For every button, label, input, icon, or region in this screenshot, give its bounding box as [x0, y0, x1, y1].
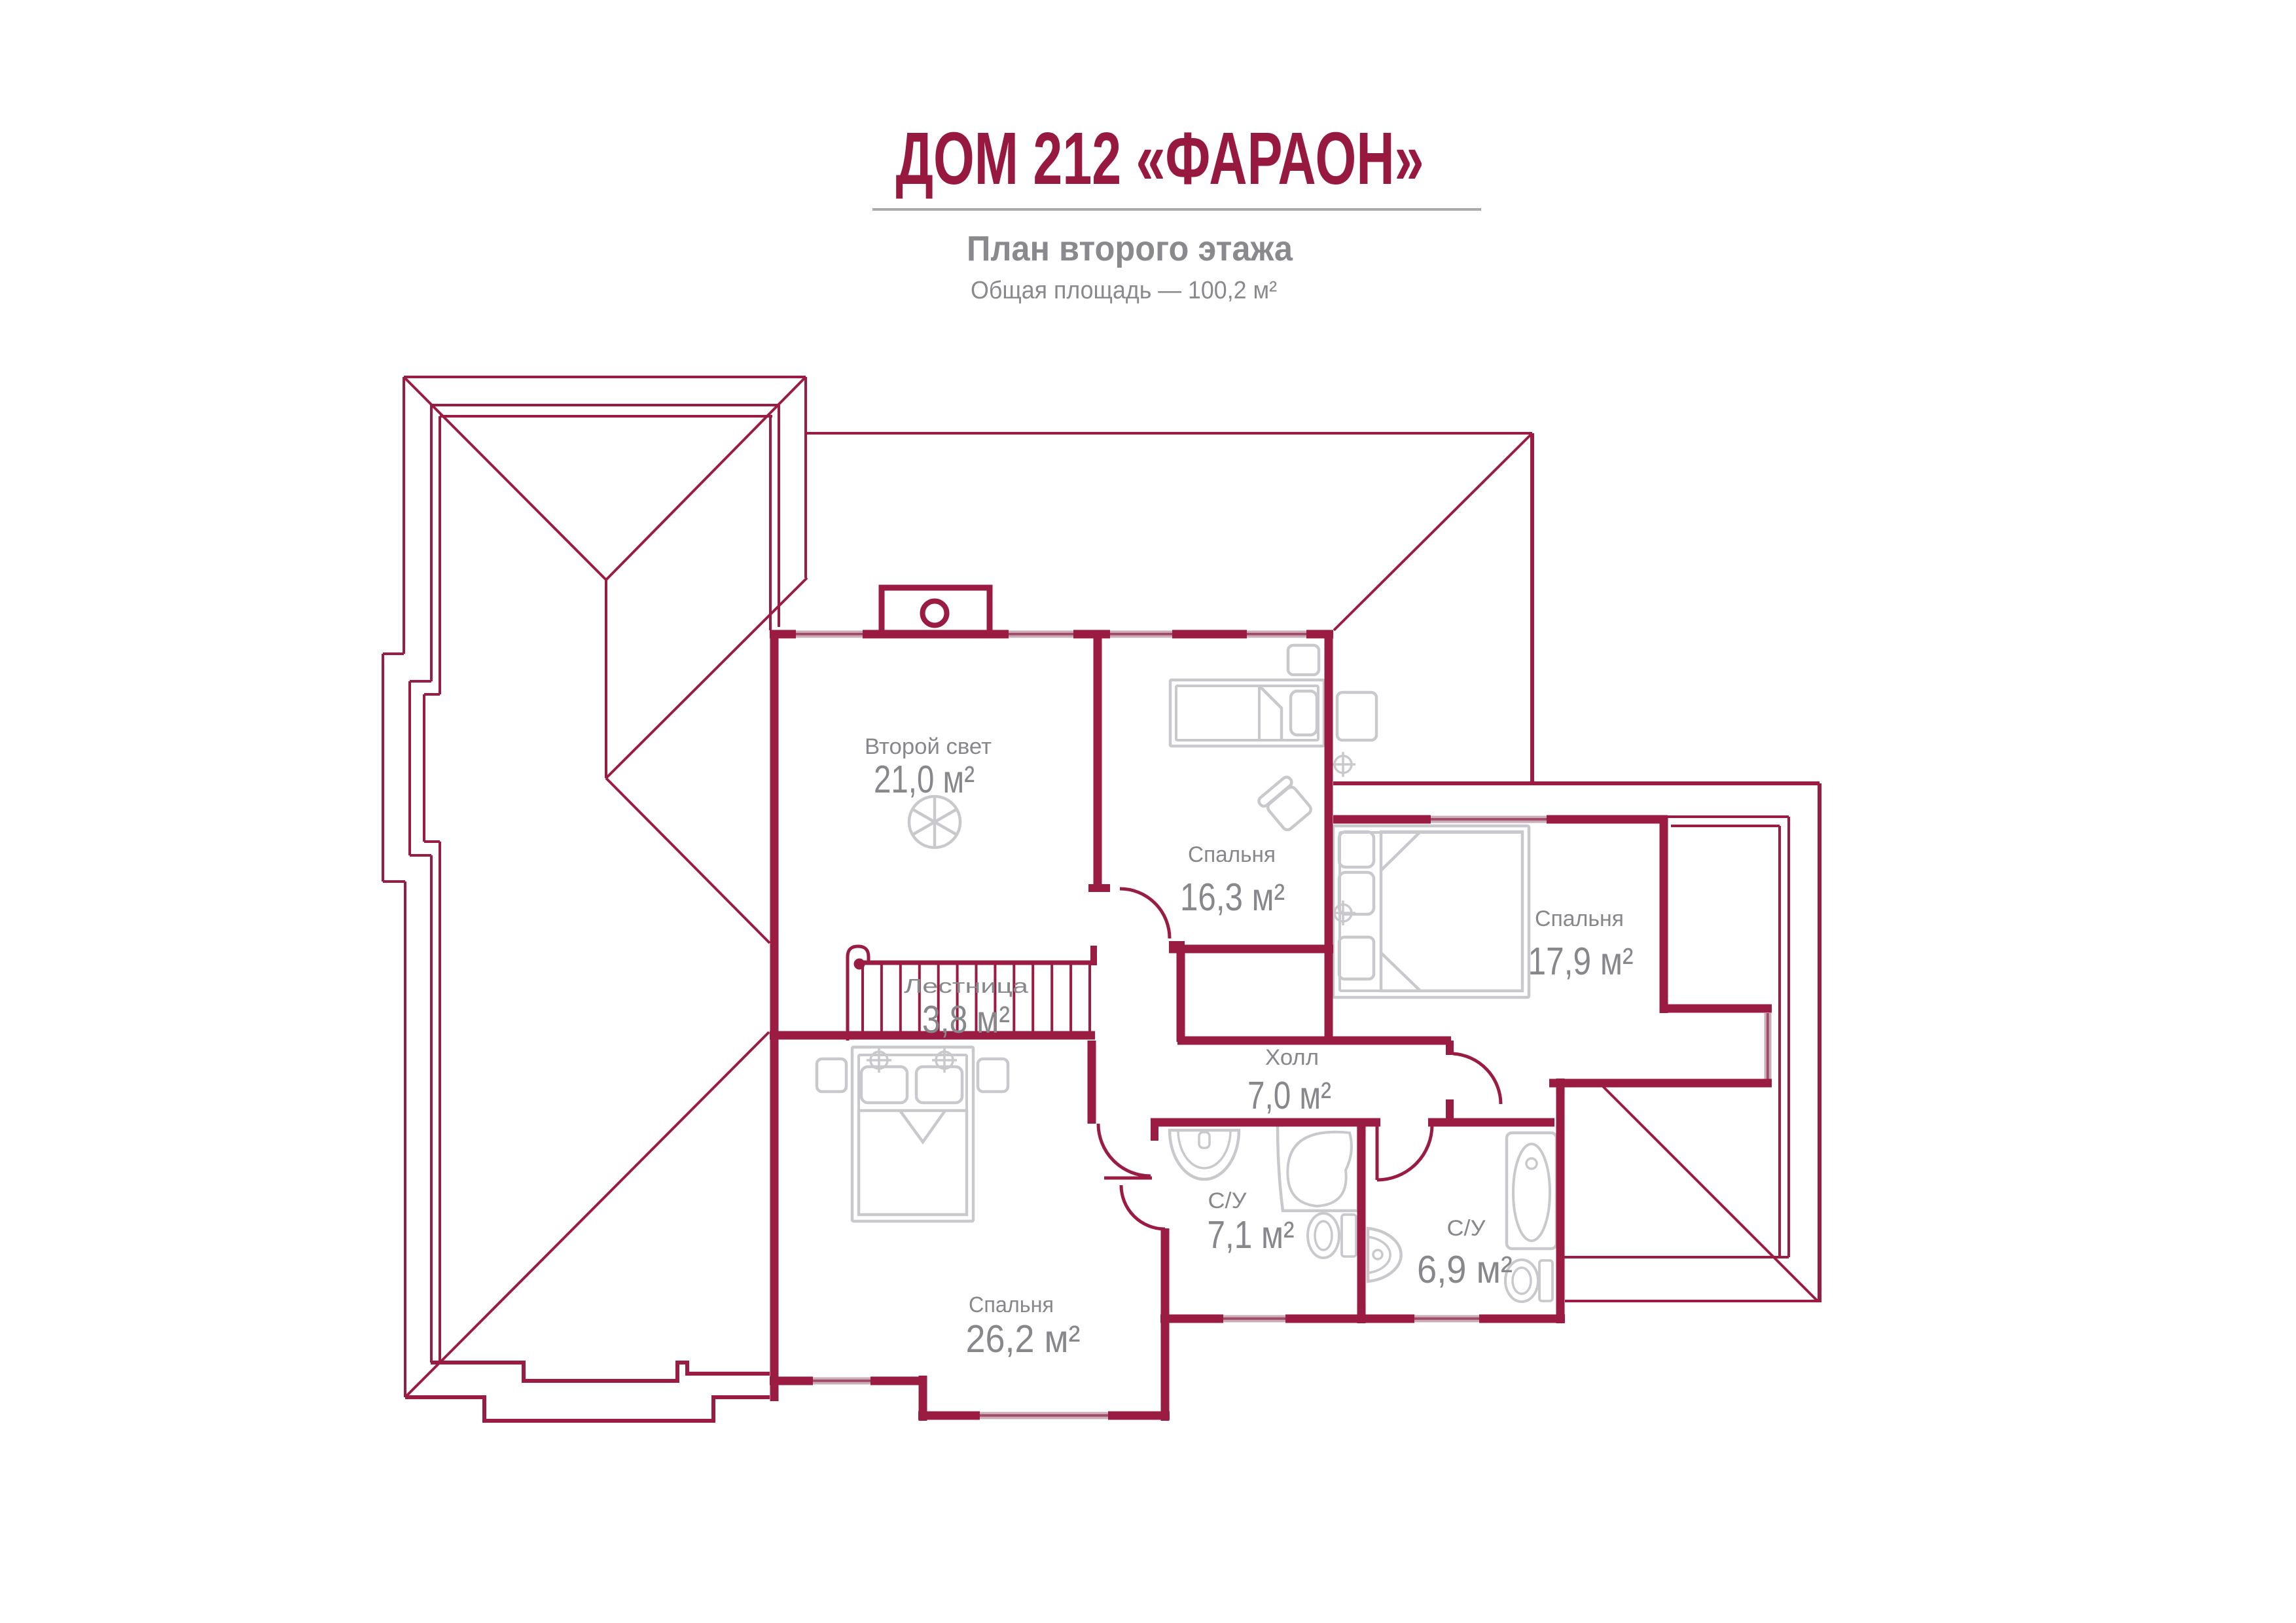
svg-text:Второй свет: Второй свет — [865, 734, 992, 759]
svg-text:7,1 м²: 7,1 м² — [1208, 1213, 1295, 1257]
svg-text:Спальня: Спальня — [1535, 906, 1624, 931]
svg-text:21,0 м²: 21,0 м² — [874, 758, 975, 801]
svg-text:Спальня: Спальня — [1188, 842, 1276, 867]
svg-text:Холл: Холл — [1265, 1045, 1319, 1070]
svg-text:17,9 м²: 17,9 м² — [1528, 940, 1634, 983]
svg-text:Общая площадь — 100,2 м²: Общая площадь — 100,2 м² — [971, 277, 1277, 304]
svg-text:6,9 м²: 6,9 м² — [1417, 1248, 1513, 1291]
svg-text:16,3 м²: 16,3 м² — [1180, 876, 1285, 919]
svg-text:26,2 м²: 26,2 м² — [966, 1317, 1081, 1361]
svg-text:С/У: С/У — [1208, 1188, 1247, 1213]
svg-text:ДОМ 212 «ФАРАОН»: ДОМ 212 «ФАРАОН» — [896, 117, 1424, 200]
svg-text:3,8 м²: 3,8 м² — [922, 998, 1010, 1041]
svg-text:7,0 м²: 7,0 м² — [1247, 1074, 1331, 1117]
svg-text:План второго этажа: План второго этажа — [967, 229, 1293, 268]
svg-text:Лестница: Лестница — [904, 974, 1029, 997]
svg-text:Спальня: Спальня — [969, 1293, 1054, 1317]
svg-text:С/У: С/У — [1447, 1216, 1486, 1241]
